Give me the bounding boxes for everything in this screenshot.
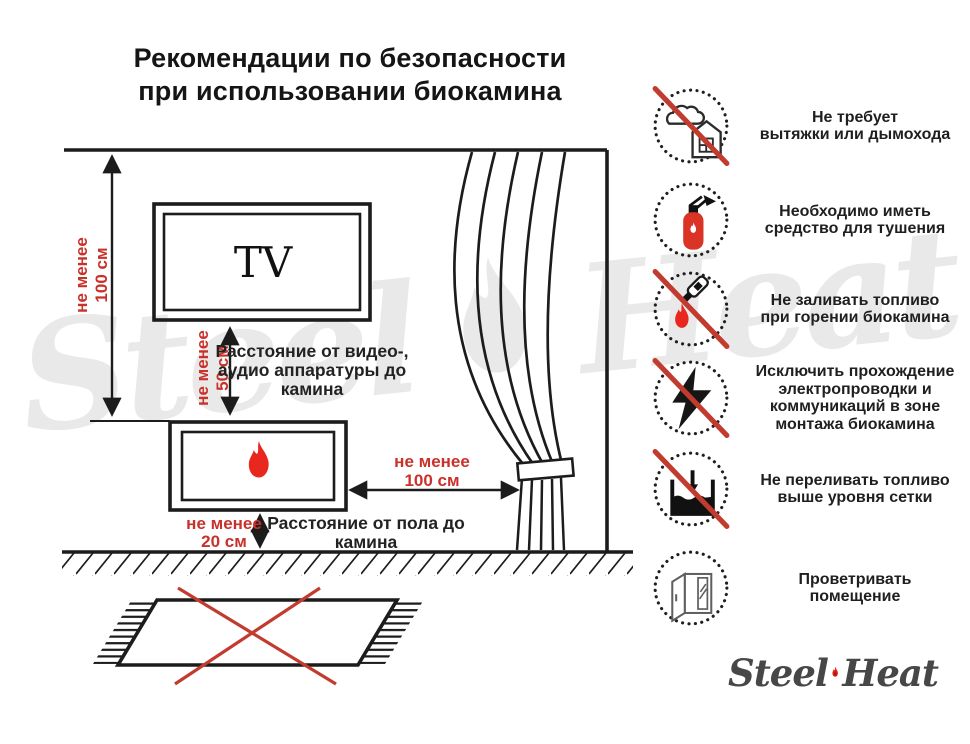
no-overfill-icon [652,450,730,528]
ventilate-icon [652,549,730,627]
dim-wall-label: не менее 100 см [72,237,111,313]
steelheat-logo: Steel Heat [728,642,938,704]
tv: TV [154,204,370,320]
no-wiring-icon [652,359,730,437]
recommendation-item-no-overfill: Не переливать топливо выше уровня сетки [652,443,964,535]
recommendation-item-no-wiring: Исключить прохождение электропроводки и … [652,352,964,444]
carpet-outline [118,600,397,665]
svg-text:100 см: 100 см [404,471,459,490]
svg-text:Расстояние от видео-,: Расстояние от видео-, [216,341,409,361]
carpet-cross-line-2 [175,588,320,684]
logo-flame-icon [828,648,842,698]
svg-text:камина: камина [335,532,398,552]
recommendation-item-no-refuel: Не заливать топливо при горении биокамин… [652,263,964,355]
svg-text:100 см: 100 см [92,247,111,302]
fireplace-flame-icon [249,441,269,477]
recommendation-text: Не требует вытяжки или дымохода [746,109,964,144]
biofireplace [170,422,346,510]
curtain-tie-band [517,459,573,481]
logo-word-heat: Heat [842,651,938,695]
svg-text:20 см: 20 см [201,532,247,551]
no-refuel-while-burning-icon [652,270,730,348]
safety-recommendations-poster: Steel Heat Рекомендации по безопасности … [0,0,970,744]
recommendation-item-no-chimney: Не требует вытяжки или дымохода [652,80,964,172]
svg-text:не менее: не менее [193,330,212,406]
recommendation-text: Необходимо иметь средство для тушения [746,203,964,238]
svg-text:аудио аппаратуры до: аудио аппаратуры до [218,360,406,380]
recommendation-text: Не заливать топливо при горении биокамин… [746,292,964,327]
recommendation-text: Не переливать топливо выше уровня сетки [746,472,964,507]
svg-text:не менее: не менее [72,237,91,313]
extinguisher-icon [652,181,730,259]
svg-text:не менее: не менее [394,452,470,471]
recommendation-text: Исключить прохождение электропроводки и … [746,363,964,433]
caption-av-distance: Расстояние от видео-, аудио аппаратуры д… [216,341,409,399]
svg-text:камина: камина [281,379,344,399]
svg-text:не менее: не менее [186,514,262,533]
recommendation-item-extinguisher: Необходимо иметь средство для тушения [652,174,964,266]
caption-floor-distance: Расстояние от пола до камина [267,513,465,552]
dim-floor-label: не менее 20 см [186,514,262,551]
no-chimney-icon [652,87,730,165]
svg-text:Расстояние от пола до: Расстояние от пола до [267,513,465,533]
recommendation-text: Проветривать помещение [746,571,964,606]
carpet-prohibited [93,588,423,684]
carpet-cross-line-1 [178,588,336,684]
floor-hatching [62,553,633,576]
recommendation-item-ventilate: Проветривать помещение [652,542,964,634]
dim-curtain-label: не менее 100 см [394,452,470,490]
logo-word-steel: Steel [728,651,828,695]
tv-label: TV [234,238,293,287]
